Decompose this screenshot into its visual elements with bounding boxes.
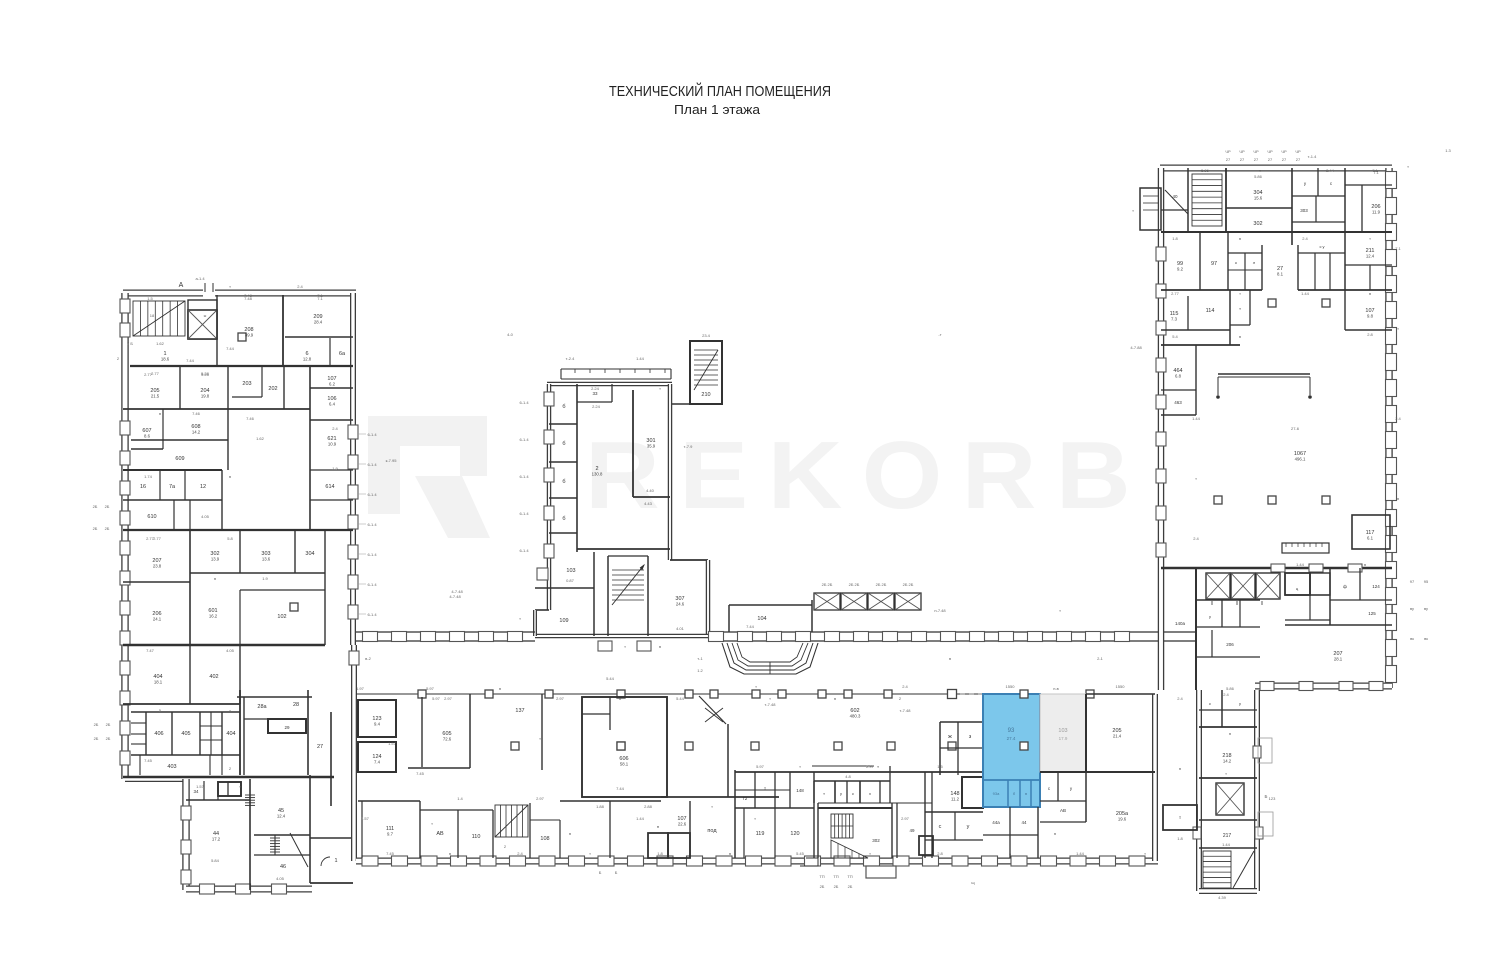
- svg-text:49: 49: [909, 828, 915, 833]
- svg-text:в: в: [214, 576, 216, 581]
- svg-text:39.9: 39.9: [245, 333, 254, 338]
- svg-text:1.57: 1.57: [196, 784, 205, 789]
- svg-text:т: т: [1397, 326, 1399, 331]
- svg-text:т: т: [769, 696, 771, 701]
- svg-text:с: с: [939, 824, 942, 830]
- svg-text:2.24: 2.24: [592, 404, 601, 409]
- svg-text:2.4: 2.4: [332, 426, 338, 431]
- svg-text:2.4: 2.4: [1193, 536, 1199, 541]
- svg-text:2.4: 2.4: [1177, 696, 1183, 701]
- svg-text:1.44: 1.44: [1192, 416, 1201, 421]
- svg-text:5.4: 5.4: [1172, 334, 1178, 339]
- svg-text:18.1: 18.1: [154, 680, 163, 685]
- svg-text:в: в: [834, 696, 836, 701]
- svg-text:2.4: 2.4: [1302, 236, 1308, 241]
- svg-text:1.3: 1.3: [1445, 148, 1451, 153]
- svg-text:1550: 1550: [1006, 684, 1016, 689]
- svg-text:4.01: 4.01: [676, 626, 685, 631]
- svg-text:2Б 2Б: 2Б 2Б: [822, 582, 833, 587]
- svg-text:16: 16: [140, 484, 146, 490]
- svg-text:93: 93: [1008, 728, 1015, 734]
- svg-text:7.45: 7.45: [144, 758, 153, 763]
- svg-text:95: 95: [1424, 579, 1429, 584]
- svg-text:28.1: 28.1: [1334, 657, 1343, 662]
- svg-text:7.44: 7.44: [186, 358, 195, 363]
- svg-text:24.6: 24.6: [676, 602, 685, 607]
- svg-text:2Б: 2Б: [105, 504, 110, 509]
- svg-text:2.44: 2.44: [1326, 168, 1335, 173]
- svg-text:в: в: [449, 851, 451, 856]
- svg-text:6-1.4: 6-1.4: [519, 437, 529, 442]
- svg-text:4-7.88: 4-7.88: [1130, 345, 1142, 350]
- svg-text:6.4: 6.4: [329, 402, 336, 407]
- svg-text:2.88: 2.88: [644, 804, 653, 809]
- svg-text:2.4: 2.4: [1223, 692, 1229, 697]
- svg-text:т: т: [877, 764, 879, 769]
- svg-text:15.6: 15.6: [1254, 196, 1263, 201]
- svg-text:6-1.4: 6-1.4: [519, 511, 529, 516]
- svg-text:ЧР: ЧР: [1267, 149, 1273, 154]
- svg-text:17.9: 17.9: [1059, 736, 1068, 741]
- svg-text:2Б: 2Б: [105, 526, 110, 531]
- svg-text:27: 27: [1240, 157, 1245, 162]
- svg-text:5.45: 5.45: [796, 851, 805, 856]
- svg-text:2.77: 2.77: [146, 536, 155, 541]
- svg-text:13.9: 13.9: [211, 557, 220, 562]
- svg-text:5.97: 5.97: [426, 686, 435, 691]
- svg-text:7.47: 7.47: [146, 648, 155, 653]
- svg-text:1.44: 1.44: [636, 356, 645, 361]
- svg-text:т: т: [1259, 168, 1261, 173]
- svg-text:5.86: 5.86: [1254, 174, 1263, 179]
- svg-text:6-1.4: 6-1.4: [367, 492, 377, 497]
- svg-text:27: 27: [1296, 157, 1301, 162]
- svg-text:140а: 140а: [1175, 621, 1186, 626]
- svg-text:125: 125: [1368, 611, 1376, 616]
- svg-text:1.2: 1.2: [697, 668, 703, 673]
- svg-text:97: 97: [1211, 261, 1217, 267]
- svg-text:2Б: 2Б: [106, 736, 111, 741]
- svg-text:11.2: 11.2: [951, 797, 960, 802]
- svg-text:2.4: 2.4: [1395, 416, 1401, 421]
- svg-text:34: 34: [193, 789, 199, 794]
- svg-text:ж: ж: [948, 734, 952, 740]
- svg-text:21.4: 21.4: [1113, 734, 1122, 739]
- svg-text:202: 202: [268, 386, 277, 392]
- svg-text:т-7.48: т-7.48: [765, 702, 777, 707]
- svg-text:4.43: 4.43: [644, 501, 653, 506]
- svg-text:4.8: 4.8: [845, 774, 851, 779]
- svg-text:203: 203: [242, 381, 251, 387]
- svg-text:4.39: 4.39: [1218, 895, 1227, 900]
- svg-text:т: т: [659, 386, 661, 391]
- svg-text:2Б: 2Б: [834, 884, 839, 889]
- svg-text:0.87: 0.87: [566, 578, 575, 583]
- svg-text:7.44: 7.44: [746, 624, 755, 629]
- svg-text:610: 610: [147, 514, 156, 520]
- svg-text:5.86: 5.86: [1201, 168, 1210, 173]
- svg-text:6а: 6а: [339, 351, 346, 357]
- svg-text:614: 614: [325, 484, 334, 490]
- svg-text:27: 27: [1226, 157, 1231, 162]
- svg-text:т: т: [869, 851, 871, 856]
- svg-text:2Б: 2Б: [93, 526, 98, 531]
- svg-text:п-7.48: п-7.48: [934, 608, 946, 613]
- svg-text:1.44: 1.44: [1222, 842, 1231, 847]
- svg-text:7.46: 7.46: [246, 416, 255, 421]
- svg-text:б: б: [562, 404, 565, 410]
- svg-text:7.46: 7.46: [192, 411, 201, 416]
- svg-text:22.6: 22.6: [678, 822, 687, 827]
- svg-text:5.86: 5.86: [1226, 686, 1235, 691]
- svg-text:в: в: [1229, 731, 1231, 736]
- svg-text:124: 124: [1372, 584, 1380, 589]
- svg-text:2.97: 2.97: [556, 696, 565, 701]
- svg-text:102: 102: [277, 614, 286, 620]
- svg-text:2.8: 2.8: [937, 851, 943, 856]
- svg-text:1.8: 1.8: [657, 851, 663, 856]
- svg-text:19.8: 19.8: [201, 394, 210, 399]
- svg-text:с у: с у: [1319, 244, 1324, 249]
- svg-text:ЧР: ЧР: [1281, 149, 1287, 154]
- svg-text:4.05: 4.05: [201, 514, 210, 519]
- svg-text:А: А: [179, 282, 184, 289]
- svg-text:т: т: [799, 764, 801, 769]
- svg-text:Б: Б: [599, 870, 602, 875]
- svg-text:ву: ву: [1410, 606, 1414, 611]
- svg-text:44: 44: [1021, 820, 1027, 825]
- svg-text:б: б: [562, 479, 565, 485]
- svg-text:28а: 28а: [257, 704, 267, 710]
- svg-text:72.6: 72.6: [443, 737, 452, 742]
- svg-text:402: 402: [209, 674, 218, 680]
- svg-text:18.6: 18.6: [161, 357, 170, 362]
- svg-text:т: т: [1407, 164, 1409, 169]
- svg-text:29: 29: [284, 725, 290, 730]
- svg-text:т-7.48: т-7.48: [900, 708, 912, 713]
- svg-text:4.05: 4.05: [276, 876, 285, 881]
- svg-text:т-1.4: т-1.4: [1308, 154, 1318, 159]
- svg-text:1.44: 1.44: [1076, 851, 1085, 856]
- svg-text:27-6: 27-6: [1291, 426, 1300, 431]
- svg-text:2Б: 2Б: [93, 504, 98, 509]
- svg-text:4-0: 4-0: [507, 332, 514, 337]
- svg-text:в: в: [1009, 851, 1011, 856]
- svg-text:7.44: 7.44: [616, 786, 625, 791]
- svg-text:в: в: [1369, 291, 1371, 296]
- svg-text:4-7.48: 4-7.48: [449, 594, 461, 599]
- svg-text:т: т: [1132, 208, 1134, 213]
- svg-text:т: т: [1059, 608, 1061, 613]
- svg-text:1.9: 1.9: [262, 576, 268, 581]
- svg-text:19.6: 19.6: [1118, 817, 1127, 822]
- svg-text:ЧР: ЧР: [1295, 149, 1301, 154]
- svg-text:27: 27: [317, 744, 323, 750]
- svg-text:т: т: [823, 791, 825, 796]
- svg-text:23.8: 23.8: [153, 564, 162, 569]
- svg-text:б: б: [562, 516, 565, 522]
- svg-text:7а: 7а: [169, 484, 176, 490]
- svg-text:т: т: [1239, 291, 1241, 296]
- svg-text:21.5: 21.5: [151, 394, 160, 399]
- svg-text:18: 18: [150, 313, 155, 318]
- svg-text:в-2: в-2: [365, 656, 371, 661]
- svg-text:14.2: 14.2: [192, 430, 201, 435]
- svg-text:6-1.4: 6-1.4: [367, 612, 377, 617]
- svg-text:27: 27: [1254, 157, 1259, 162]
- svg-text:12.4: 12.4: [277, 814, 286, 819]
- svg-text:6.1: 6.1: [1367, 536, 1374, 541]
- svg-text:6-1.4: 6-1.4: [367, 522, 377, 527]
- svg-text:2.4: 2.4: [517, 851, 523, 856]
- svg-text:28: 28: [293, 702, 299, 708]
- svg-text:1.44: 1.44: [1301, 291, 1310, 296]
- svg-text:2Б: 2Б: [820, 884, 825, 889]
- svg-text:т: т: [1179, 815, 1181, 820]
- svg-text:2.97: 2.97: [901, 816, 910, 821]
- svg-text:137: 137: [515, 708, 524, 714]
- svg-text:304: 304: [305, 551, 314, 557]
- svg-text:5.44: 5.44: [676, 696, 685, 701]
- svg-text:2Б 2Б: 2Б 2Б: [903, 582, 914, 587]
- svg-text:т2: т2: [743, 796, 748, 801]
- svg-text:АВ: АВ: [436, 831, 444, 837]
- svg-text:1.9: 1.9: [332, 466, 338, 471]
- svg-text:т: т: [624, 644, 626, 649]
- svg-text:ЧР: ЧР: [1253, 149, 1259, 154]
- svg-text:2.4: 2.4: [902, 684, 908, 689]
- svg-text:7.1: 7.1: [1395, 246, 1401, 251]
- svg-text:404: 404: [226, 731, 235, 737]
- svg-text:40: 40: [1172, 194, 1178, 199]
- svg-text:п: п: [657, 824, 659, 829]
- svg-text:т-2.4: т-2.4: [566, 356, 576, 361]
- svg-text:в: в: [729, 851, 731, 856]
- svg-text:2.97: 2.97: [536, 796, 545, 801]
- svg-text:1550: 1550: [1116, 684, 1126, 689]
- svg-text:114: 114: [1206, 308, 1215, 314]
- svg-text:4.40: 4.40: [646, 488, 655, 493]
- svg-text:108: 108: [540, 836, 549, 842]
- svg-text:2Б: 2Б: [106, 722, 111, 727]
- svg-text:14.2: 14.2: [1223, 759, 1232, 764]
- svg-text:104: 104: [757, 616, 766, 622]
- svg-text:123: 123: [1269, 796, 1276, 801]
- svg-text:АВ: АВ: [1060, 808, 1066, 813]
- svg-text:2.8: 2.8: [1367, 332, 1373, 337]
- svg-text:44а: 44а: [992, 820, 1000, 825]
- svg-text:9.2: 9.2: [1177, 267, 1184, 272]
- svg-text:в: в: [1179, 766, 1181, 771]
- svg-text:вк: вк: [1410, 636, 1414, 641]
- svg-text:119: 119: [756, 831, 765, 837]
- svg-text:а-1.4: а-1.4: [195, 276, 205, 281]
- svg-text:1.57: 1.57: [388, 741, 397, 746]
- svg-text:под: под: [707, 828, 717, 834]
- svg-text:т: т: [754, 816, 756, 821]
- svg-text:т-7.9: т-7.9: [684, 444, 694, 449]
- svg-text:5.8: 5.8: [227, 536, 233, 541]
- svg-text:Б: Б: [1265, 794, 1268, 799]
- svg-text:130.8: 130.8: [592, 472, 603, 477]
- svg-text:в: в: [949, 656, 951, 661]
- svg-text:у: у: [1209, 614, 1211, 619]
- svg-text:1.62: 1.62: [156, 341, 165, 346]
- svg-text:9.7: 9.7: [387, 832, 394, 837]
- svg-text:Б: Б: [615, 870, 618, 875]
- svg-text:6-1.4: 6-1.4: [367, 582, 377, 587]
- svg-text:ТП: ТП: [819, 874, 824, 879]
- svg-text:6-1.4: 6-1.4: [519, 474, 529, 479]
- svg-text:10.9: 10.9: [328, 442, 337, 447]
- svg-text:ф: ф: [1343, 584, 1347, 589]
- svg-text:302: 302: [1253, 221, 1262, 227]
- svg-text:т: т: [229, 284, 231, 289]
- svg-text:1.8: 1.8: [1177, 836, 1183, 841]
- svg-text:7.44: 7.44: [226, 346, 235, 351]
- svg-text:к-7.95: к-7.95: [386, 458, 398, 463]
- svg-text:13.6: 13.6: [262, 557, 271, 562]
- svg-text:6-1.4: 6-1.4: [367, 432, 377, 437]
- svg-text:148: 148: [796, 788, 804, 793]
- svg-text:405: 405: [181, 731, 190, 737]
- svg-text:2.77: 2.77: [144, 372, 153, 377]
- svg-text:с: с: [1209, 701, 1211, 706]
- svg-text:2Б: 2Б: [848, 884, 853, 889]
- svg-text:109: 109: [559, 618, 568, 624]
- svg-text:в: в: [1239, 236, 1241, 241]
- svg-text:8.6: 8.6: [144, 434, 151, 439]
- svg-text:7.45: 7.45: [416, 771, 425, 776]
- svg-text:в: в: [159, 411, 161, 416]
- svg-text:2Б 2Б: 2Б 2Б: [849, 582, 860, 587]
- svg-text:7 Б: 7 Б: [127, 341, 133, 346]
- svg-text:х: х: [869, 791, 871, 796]
- svg-text:т: т: [539, 736, 541, 741]
- svg-text:27: 27: [1268, 157, 1273, 162]
- svg-text:110: 110: [472, 834, 481, 840]
- svg-text:у: у: [1239, 701, 1241, 706]
- svg-text:у: у: [840, 791, 842, 796]
- svg-text:в: в: [1025, 791, 1027, 796]
- svg-text:496.1: 496.1: [1295, 457, 1306, 462]
- svg-text:2.97: 2.97: [866, 764, 875, 769]
- svg-text:480.3: 480.3: [850, 714, 861, 719]
- svg-text:1.5: 1.5: [937, 764, 943, 769]
- svg-text:в: в: [1364, 562, 1366, 567]
- svg-text:ТЕХНИЧЕСКИЙ ПЛАН ПОМЕЩЕНИЯ: ТЕХНИЧЕСКИЙ ПЛАН ПОМЕЩЕНИЯ: [609, 82, 831, 100]
- svg-text:5.84: 5.84: [211, 858, 220, 863]
- svg-text:т: т: [755, 684, 757, 689]
- svg-text:206: 206: [1226, 642, 1234, 647]
- svg-text:6.8: 6.8: [1175, 374, 1182, 379]
- svg-text:6-1.4: 6-1.4: [519, 400, 529, 405]
- svg-text:5.28: 5.28: [201, 372, 210, 377]
- svg-text:ТП: ТП: [833, 874, 838, 879]
- svg-text:1: 1: [334, 858, 337, 864]
- svg-text:в: в: [569, 831, 571, 836]
- svg-text:9.8: 9.8: [1367, 314, 1374, 319]
- svg-text:т: т: [1195, 476, 1197, 481]
- svg-text:б: б: [562, 441, 565, 447]
- svg-text:302: 302: [872, 838, 880, 843]
- svg-text:103: 103: [1058, 728, 1067, 734]
- svg-text:403: 403: [167, 764, 176, 770]
- svg-text:46: 46: [280, 864, 286, 870]
- svg-text:6-1.4: 6-1.4: [519, 548, 529, 553]
- svg-text:1.44: 1.44: [1296, 562, 1305, 567]
- svg-text:в: в: [1397, 496, 1399, 501]
- svg-text:2.4: 2.4: [297, 284, 303, 289]
- svg-text:в: в: [659, 644, 661, 649]
- svg-text:т: т: [1239, 306, 1241, 311]
- svg-text:217: 217: [1223, 833, 1232, 839]
- svg-text:1.62: 1.62: [256, 436, 265, 441]
- svg-text:в: в: [619, 696, 621, 701]
- svg-text:т-1: т-1: [697, 656, 703, 661]
- svg-text:7.3: 7.3: [1171, 317, 1178, 322]
- svg-text:вк: вк: [1424, 636, 1428, 641]
- svg-text:5.44: 5.44: [606, 676, 615, 681]
- svg-text:12: 12: [200, 484, 206, 490]
- svg-text:2Б 2Б: 2Б 2Б: [876, 582, 887, 587]
- svg-text:27.4: 27.4: [1007, 736, 1016, 741]
- svg-text:97: 97: [1410, 579, 1415, 584]
- svg-text:1.74: 1.74: [144, 474, 153, 479]
- svg-text:4.05: 4.05: [226, 648, 235, 653]
- svg-text:ву: ву: [1424, 606, 1428, 611]
- svg-text:в: в: [499, 686, 501, 691]
- svg-text:58.1: 58.1: [620, 762, 629, 767]
- svg-text:т: т: [229, 708, 231, 713]
- svg-text:2.77: 2.77: [153, 536, 162, 541]
- svg-text:120: 120: [790, 831, 799, 837]
- svg-text:6-1.4: 6-1.4: [367, 462, 377, 467]
- svg-text:8.1: 8.1: [1277, 272, 1284, 277]
- svg-text:т: т: [1229, 570, 1231, 575]
- svg-text:27: 27: [1282, 157, 1287, 162]
- svg-text:ТП: ТП: [847, 874, 852, 879]
- svg-text:7.45: 7.45: [386, 851, 395, 856]
- svg-text:7.1: 7.1: [1372, 168, 1378, 173]
- svg-text:1.57: 1.57: [361, 816, 370, 821]
- svg-text:463: 463: [1174, 400, 1182, 405]
- svg-text:11.9: 11.9: [1372, 210, 1381, 215]
- svg-text:9.4: 9.4: [374, 722, 381, 727]
- svg-text:с: с: [852, 791, 854, 796]
- svg-text:210: 210: [701, 392, 710, 398]
- svg-text:5.97: 5.97: [756, 764, 765, 769]
- svg-text:в: в: [229, 474, 231, 479]
- svg-text:1.5: 1.5: [147, 296, 153, 301]
- svg-text:6-1.4: 6-1.4: [367, 552, 377, 557]
- svg-text:12.8: 12.8: [303, 357, 312, 362]
- svg-text:т: т: [431, 821, 433, 826]
- svg-text:7.48: 7.48: [244, 293, 253, 298]
- svg-text:в: в: [1054, 831, 1056, 836]
- svg-text:ЧР: ЧР: [1225, 149, 1231, 154]
- svg-text:2.24: 2.24: [591, 386, 600, 391]
- svg-text:у: у: [967, 824, 970, 830]
- svg-text:16.2: 16.2: [209, 614, 218, 619]
- svg-text:2.77: 2.77: [151, 371, 160, 376]
- svg-text:2Б: 2Б: [94, 736, 99, 741]
- svg-text:17.2: 17.2: [212, 837, 221, 842]
- svg-text:406: 406: [154, 731, 163, 737]
- svg-text:в: в: [1239, 334, 1241, 339]
- svg-text:5.97: 5.97: [432, 696, 441, 701]
- svg-text:103: 103: [566, 568, 575, 574]
